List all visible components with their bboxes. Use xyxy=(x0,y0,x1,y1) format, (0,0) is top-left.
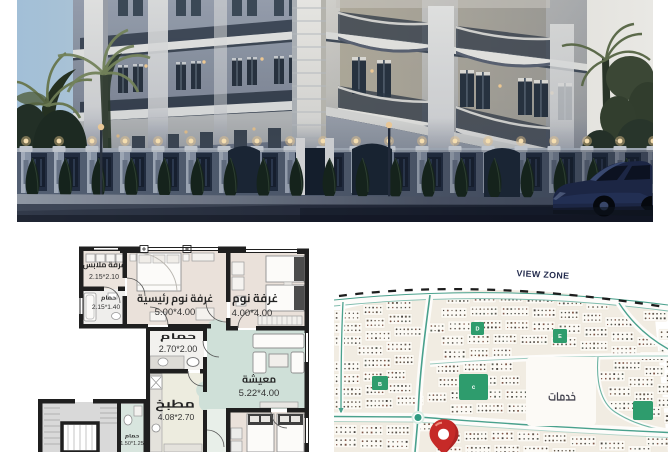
svg-text:D: D xyxy=(476,327,480,333)
svg-text:1.50*1.25: 1.50*1.25 xyxy=(120,441,144,447)
svg-text:4.08*2.70: 4.08*2.70 xyxy=(158,412,195,422)
svg-text:E: E xyxy=(558,334,562,340)
svg-text:B: B xyxy=(378,382,382,388)
svg-text:4.00*4.00: 4.00*4.00 xyxy=(232,308,273,319)
svg-text:5.00*4.00: 5.00*4.00 xyxy=(155,307,196,318)
svg-text:2.15*2.10: 2.15*2.10 xyxy=(89,274,119,281)
svg-text:2.15*1.40: 2.15*1.40 xyxy=(92,304,121,311)
svg-text:2.70*2.00: 2.70*2.00 xyxy=(159,344,198,354)
svg-text:5.22*4.00: 5.22*4.00 xyxy=(239,388,280,399)
